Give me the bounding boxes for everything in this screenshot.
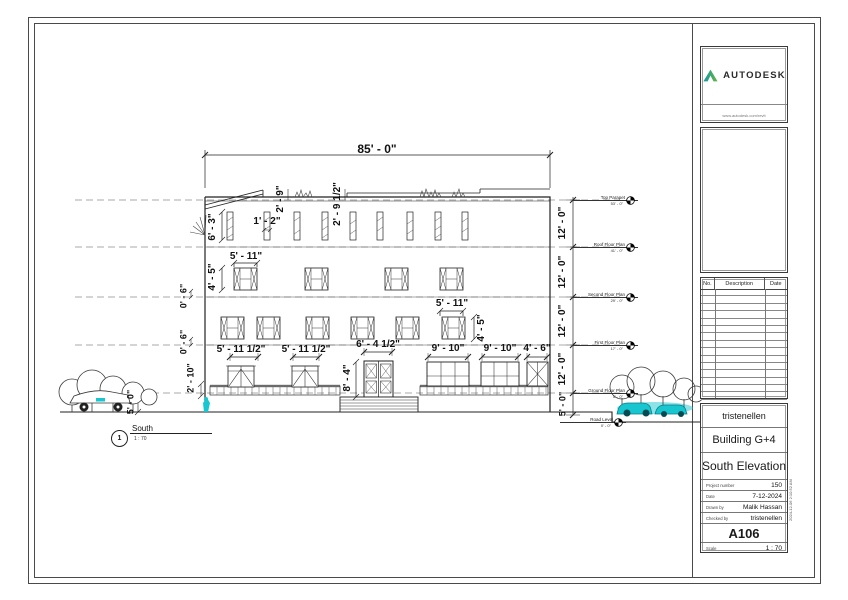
field-label: Project number — [706, 483, 734, 488]
level-target-icon — [626, 293, 635, 302]
level-target-icon — [626, 196, 635, 205]
dim-story-2: 12' - 0" — [558, 305, 568, 338]
field-label: Checked by — [706, 516, 728, 521]
revision-col-date: Date — [765, 278, 787, 289]
titleblock-info-box: tristenellen Building G+4 South Elevatio… — [700, 403, 788, 553]
field-label: Date — [706, 494, 715, 499]
dim-slit-window-width: 1' - 2" — [253, 217, 280, 227]
dim-left-door-1: 5' - 11 1/2" — [217, 345, 266, 355]
dim-overall-width: 85' - 0" — [357, 143, 396, 155]
field-label: Scale — [706, 546, 716, 551]
dim-storefront-2: 9' - 10" — [484, 344, 517, 354]
dim-first-window-width: 5' - 11" — [436, 299, 468, 309]
revision-row — [701, 392, 787, 399]
revision-row — [701, 333, 787, 340]
dim-parapet-left: 2' - 9" — [276, 185, 286, 212]
level-target-icon — [626, 243, 635, 252]
titleblock-logo-box: AUTODESK www.autodesk.com/revit — [700, 46, 788, 123]
revision-row — [701, 356, 787, 363]
revision-row — [701, 326, 787, 333]
dim-slit-window-height: 6' - 3" — [208, 213, 218, 240]
dim-story-1: 12' - 0" — [558, 353, 568, 386]
autodesk-mark-icon — [702, 68, 719, 83]
dim-left-door-2: 5' - 11 1/2" — [282, 345, 331, 355]
dim-main-door-width: 6' - 4 1/2" — [356, 340, 400, 350]
level-marker-first: First Floor Plan 17' - 0" — [572, 340, 638, 351]
revision-row — [701, 311, 787, 318]
dim-second-window-height: 4' - 5" — [208, 263, 218, 290]
field-date: Date 7-12-2024 — [701, 491, 787, 502]
revision-row — [701, 289, 787, 296]
project-name: Building G+4 — [701, 428, 787, 453]
dim-parapet-right: 2' - 9 1/2" — [333, 182, 343, 226]
level-marker-second: Second Floor Plan 29' - 0" — [572, 292, 638, 303]
level-target-icon — [614, 418, 623, 427]
level-target-icon — [626, 389, 635, 398]
dim-sill-lower: 0' - 6" — [180, 330, 189, 354]
level-marker-ground: Ground Floor Plan 5' - 0" — [572, 388, 638, 399]
revision-row — [701, 319, 787, 326]
field-value: Malik Hassan — [743, 504, 782, 511]
view-name: South — [132, 424, 153, 433]
view-scale: 1 : 70 — [134, 436, 147, 442]
revision-rows — [701, 289, 787, 398]
level-marker-road: Road Level 0' - 0" — [560, 417, 626, 428]
dim-story-4: 12' - 0" — [558, 207, 568, 240]
revision-row — [701, 304, 787, 311]
field-value: 1 : 70 — [766, 545, 782, 552]
sheet-title: South Elevation — [701, 453, 787, 480]
client-name: tristenellen — [701, 404, 787, 428]
field-checked-by: Checked by tristenellen — [701, 513, 787, 524]
dim-main-door-height: 8' - 4" — [343, 364, 353, 391]
dim-plinth-height: 5' - 0" — [127, 390, 136, 414]
autodesk-logo: AUTODESK — [701, 47, 787, 104]
field-label: Drawn by — [706, 505, 724, 510]
autodesk-url: www.autodesk.com/revit — [701, 104, 787, 125]
print-stamp: 2024-12-06 2:10:52 AM — [788, 440, 798, 560]
revision-row — [701, 385, 787, 392]
view-number: 1 — [118, 435, 122, 442]
revision-row — [701, 348, 787, 355]
revision-row — [701, 296, 787, 303]
dim-sill-upper: 0' - 6" — [180, 284, 189, 308]
dim-porch-height: 2' - 10" — [187, 363, 196, 392]
dim-storefront-1: 9' - 10" — [432, 344, 465, 354]
revision-row — [701, 363, 787, 370]
level-marker-roof: Roof Floor Plan 41' - 0" — [572, 242, 638, 253]
view-number-bubble: 1 — [111, 430, 128, 447]
level-marker-top-parapet: Top Parapet 53' - 0" — [572, 195, 638, 206]
revision-row — [701, 378, 787, 385]
drawing-sheet: 85' - 0" 2' - 9" 2' - 9 1/2" 6' - 3" 1' … — [0, 0, 848, 600]
field-scale: Scale 1 : 70 — [701, 543, 787, 554]
dim-first-window-height: 4' - 5" — [477, 314, 487, 341]
revision-row — [701, 370, 787, 377]
dim-story-3: 12' - 0" — [558, 256, 568, 289]
view-title-underline — [130, 433, 212, 434]
titleblock-consultant-box — [700, 127, 788, 273]
level-target-icon — [626, 341, 635, 350]
revision-table: No. Description Date — [700, 277, 788, 399]
field-drawn-by: Drawn by Malik Hassan — [701, 502, 787, 513]
revision-row — [701, 341, 787, 348]
autodesk-wordmark: AUTODESK — [723, 70, 786, 81]
field-value: 150 — [771, 482, 782, 489]
field-project-number: Project number 150 — [701, 480, 787, 491]
field-value: 7-12-2024 — [752, 493, 782, 500]
revision-col-no: No. — [701, 278, 715, 289]
dim-plinth-right: 5' - 0" — [559, 392, 568, 416]
field-value: tristenellen — [751, 515, 782, 522]
sheet-number: A106 — [701, 524, 787, 543]
dim-storefront-3: 4' - 6" — [523, 344, 550, 354]
revision-col-description: Description — [715, 278, 765, 289]
dim-second-window-width: 5' - 11" — [230, 252, 262, 262]
